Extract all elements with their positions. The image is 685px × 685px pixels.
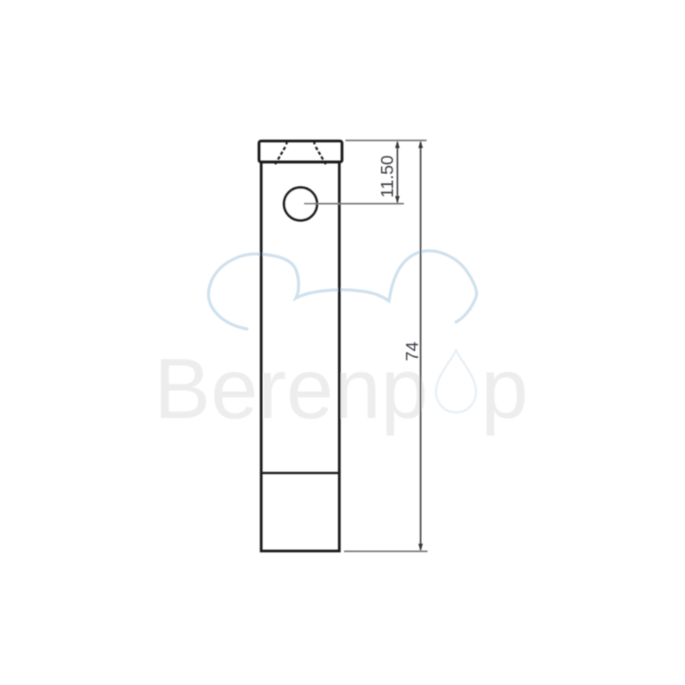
svg-text:74: 74 <box>402 341 422 361</box>
svg-text:11.50: 11.50 <box>377 155 397 198</box>
svg-text:Berenp: Berenp <box>154 342 428 437</box>
svg-text:p: p <box>481 342 528 437</box>
